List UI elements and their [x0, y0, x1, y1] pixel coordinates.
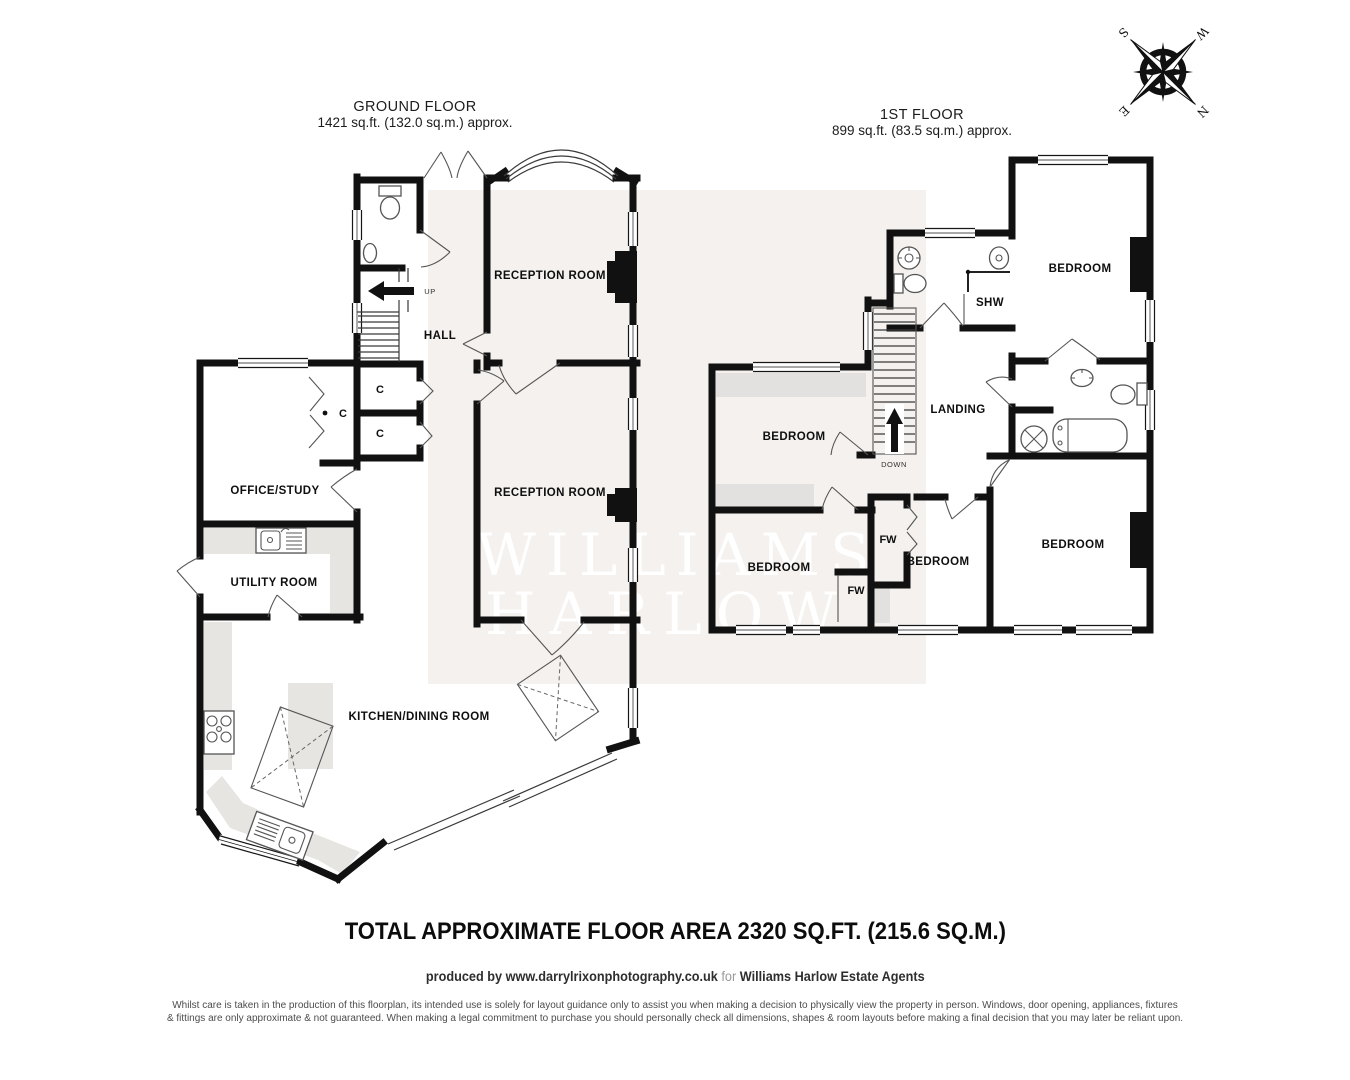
kitchen-glazed-wall — [388, 753, 617, 850]
room-label-landing: LANDING — [930, 404, 985, 416]
room-label-office: OFFICE/STUDY — [230, 485, 319, 497]
room-label-utility: UTILITY ROOM — [230, 577, 317, 589]
disclaimer-line1: Whilst care is taken in the production o… — [0, 999, 1350, 1012]
room-label-bedroom-mid-left: BEDROOM — [763, 431, 826, 443]
total-floor-area: TOTAL APPROXIMATE FLOOR AREA 2320 SQ.FT.… — [0, 918, 1350, 946]
cupboard-label-2: C — [376, 428, 384, 440]
watermark-line2: HARLOW — [485, 580, 851, 648]
ground-floor-area: 1421 sq.ft. (132.0 sq.m.) approx. — [215, 115, 615, 130]
bathroom-basin — [1071, 369, 1093, 387]
room-label-reception-1: RECEPTION ROOM — [494, 270, 606, 282]
floorplan-page: WILLIAMS HARLOW — [0, 0, 1350, 1080]
watermark-line1: WILLIAMS — [476, 521, 879, 589]
shower-tray — [1021, 426, 1047, 452]
shower-room-basin-2 — [990, 247, 1009, 269]
disclaimer-line2: & fittings are only approximate & not gu… — [0, 1012, 1350, 1025]
credit-mid: for — [721, 969, 736, 984]
credit-agent: Williams Harlow Estate Agents — [739, 969, 924, 984]
ground-floor-title: GROUND FLOOR — [215, 99, 615, 115]
room-label-bedroom-bottom-right: BEDROOM — [1042, 539, 1105, 551]
total-floor-area-text: TOTAL APPROXIMATE FLOOR AREA 2320 SQ.FT.… — [344, 918, 1005, 946]
credit-url: www.darrylrixonphotography.co.uk — [505, 969, 717, 984]
bay-window — [504, 150, 618, 182]
watermark: WILLIAMS HARLOW — [428, 190, 926, 684]
first-floor-header: 1ST FLOOR 899 sq.ft. (83.5 sq.m.) approx… — [722, 107, 1122, 138]
cupboard-label-3: C — [339, 408, 347, 420]
room-label-reception-2: RECEPTION ROOM — [494, 487, 606, 499]
credit-line: produced by www.darrylrixonphotography.c… — [0, 969, 1350, 984]
bathtub — [1053, 419, 1127, 452]
compass-south-label: S — [1116, 25, 1132, 41]
wc-basin — [364, 244, 377, 263]
wardrobe-label-2: FW — [847, 585, 865, 597]
first-floor-area: 899 sq.ft. (83.5 sq.m.) approx. — [722, 123, 1122, 138]
disclaimer: Whilst care is taken in the production o… — [0, 999, 1350, 1025]
compass-north-label: N — [1194, 103, 1211, 120]
cupboard-label-1: C — [376, 384, 384, 396]
room-label-bedroom-top-right: BEDROOM — [1049, 263, 1112, 275]
room-label-bedroom-middle: BEDROOM — [907, 556, 970, 568]
room-label-hall: HALL — [424, 330, 456, 342]
utility-sink — [256, 528, 306, 553]
room-label-kitchen: KITCHEN/DINING ROOM — [348, 711, 489, 723]
room-label-bedroom-bottom-left: BEDROOM — [748, 562, 811, 574]
room-label-shower: SHW — [976, 297, 1004, 309]
wardrobe-label-1: FW — [879, 534, 897, 546]
bathroom-toilet — [1111, 383, 1147, 405]
stairs-up-label: UP — [424, 287, 435, 296]
hob — [204, 711, 234, 754]
wc-toilet — [379, 186, 401, 219]
shower-room-toilet — [894, 274, 926, 293]
stairs-down-label: DOWN — [881, 460, 907, 469]
shower-room-basin — [898, 247, 920, 269]
ground-floor-stairs — [357, 268, 418, 362]
ground-floor-header: GROUND FLOOR 1421 sq.ft. (132.0 sq.m.) a… — [215, 99, 615, 130]
credit-prefix: produced by — [426, 969, 502, 984]
first-floor-title: 1ST FLOOR — [722, 107, 1122, 123]
